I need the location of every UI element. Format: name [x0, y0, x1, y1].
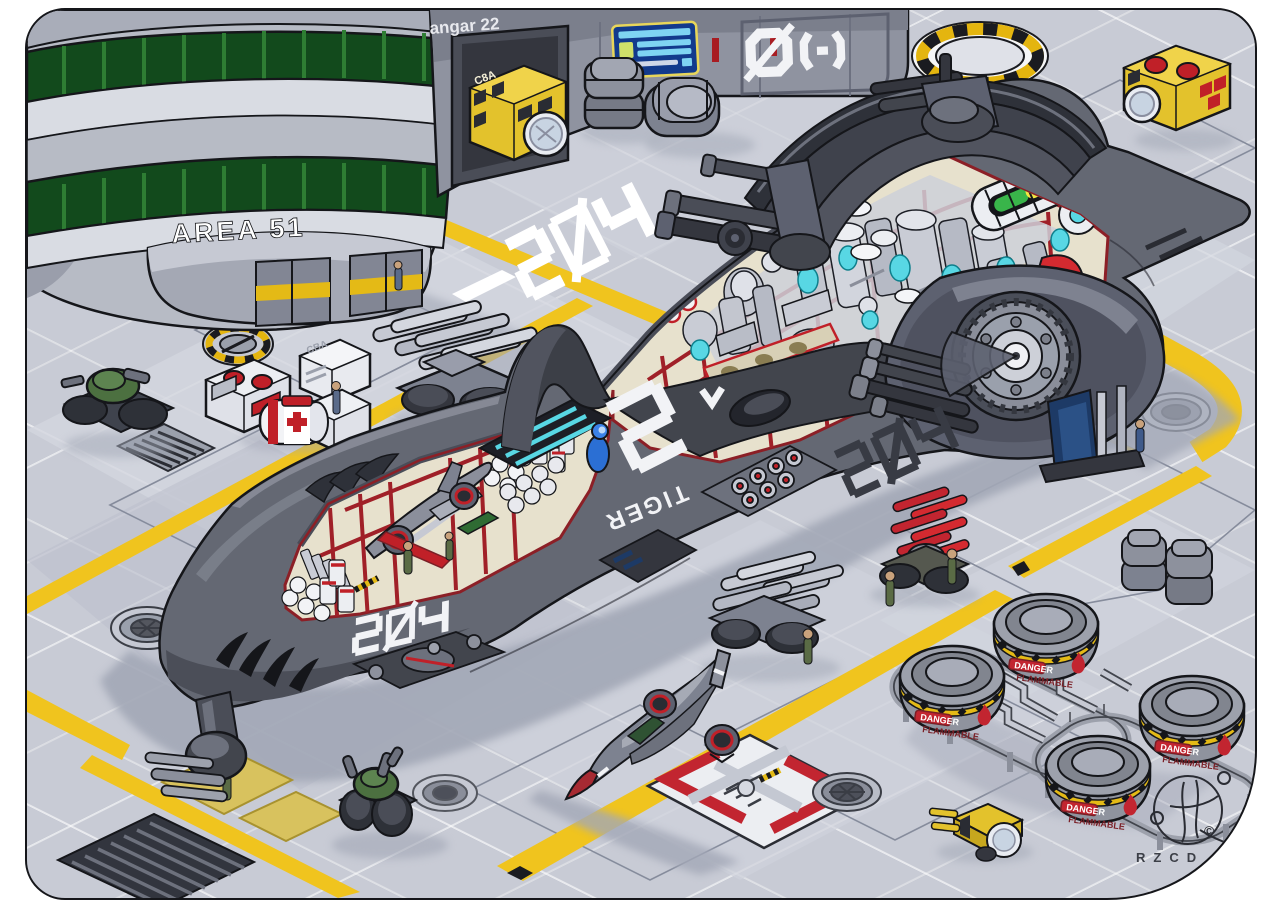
svg-text:RZCD: RZCD	[1136, 850, 1204, 865]
svg-text:©: ©	[1204, 823, 1215, 839]
